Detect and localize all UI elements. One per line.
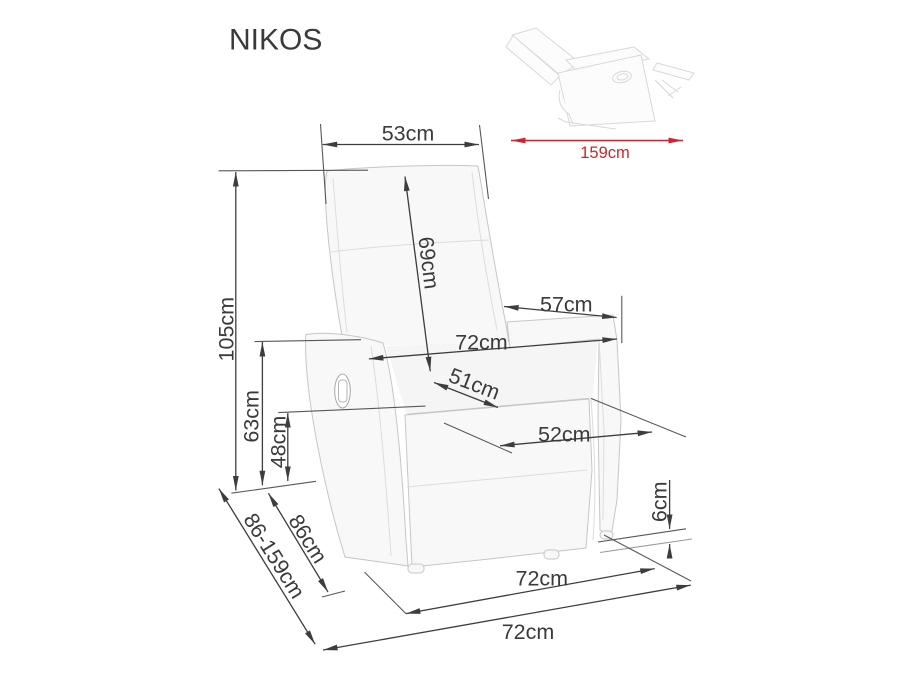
svg-text:NIKOS: NIKOS bbox=[229, 24, 322, 57]
svg-text:105cm: 105cm bbox=[214, 297, 238, 362]
svg-text:48cm: 48cm bbox=[267, 416, 291, 469]
svg-text:57cm: 57cm bbox=[540, 293, 593, 317]
svg-text:159cm: 159cm bbox=[580, 144, 630, 162]
svg-text:6cm: 6cm bbox=[648, 481, 672, 522]
svg-text:72cm: 72cm bbox=[502, 620, 555, 644]
svg-text:72cm: 72cm bbox=[455, 331, 508, 355]
svg-text:53cm: 53cm bbox=[382, 121, 435, 145]
svg-text:72cm: 72cm bbox=[516, 567, 569, 591]
svg-text:52cm: 52cm bbox=[538, 422, 591, 446]
svg-text:63cm: 63cm bbox=[239, 390, 263, 443]
